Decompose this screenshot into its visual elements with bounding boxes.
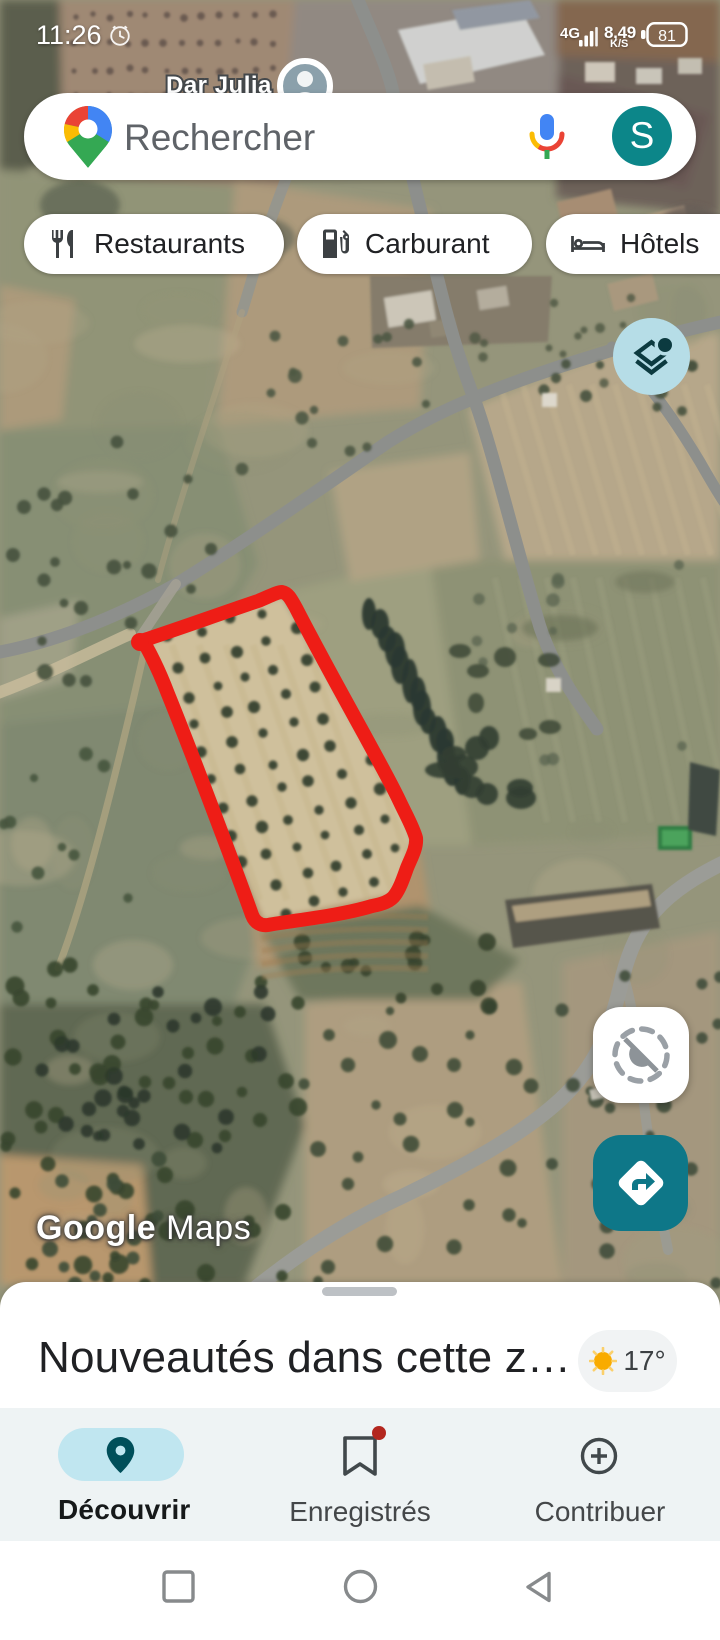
svg-text:81: 81 bbox=[658, 28, 676, 45]
